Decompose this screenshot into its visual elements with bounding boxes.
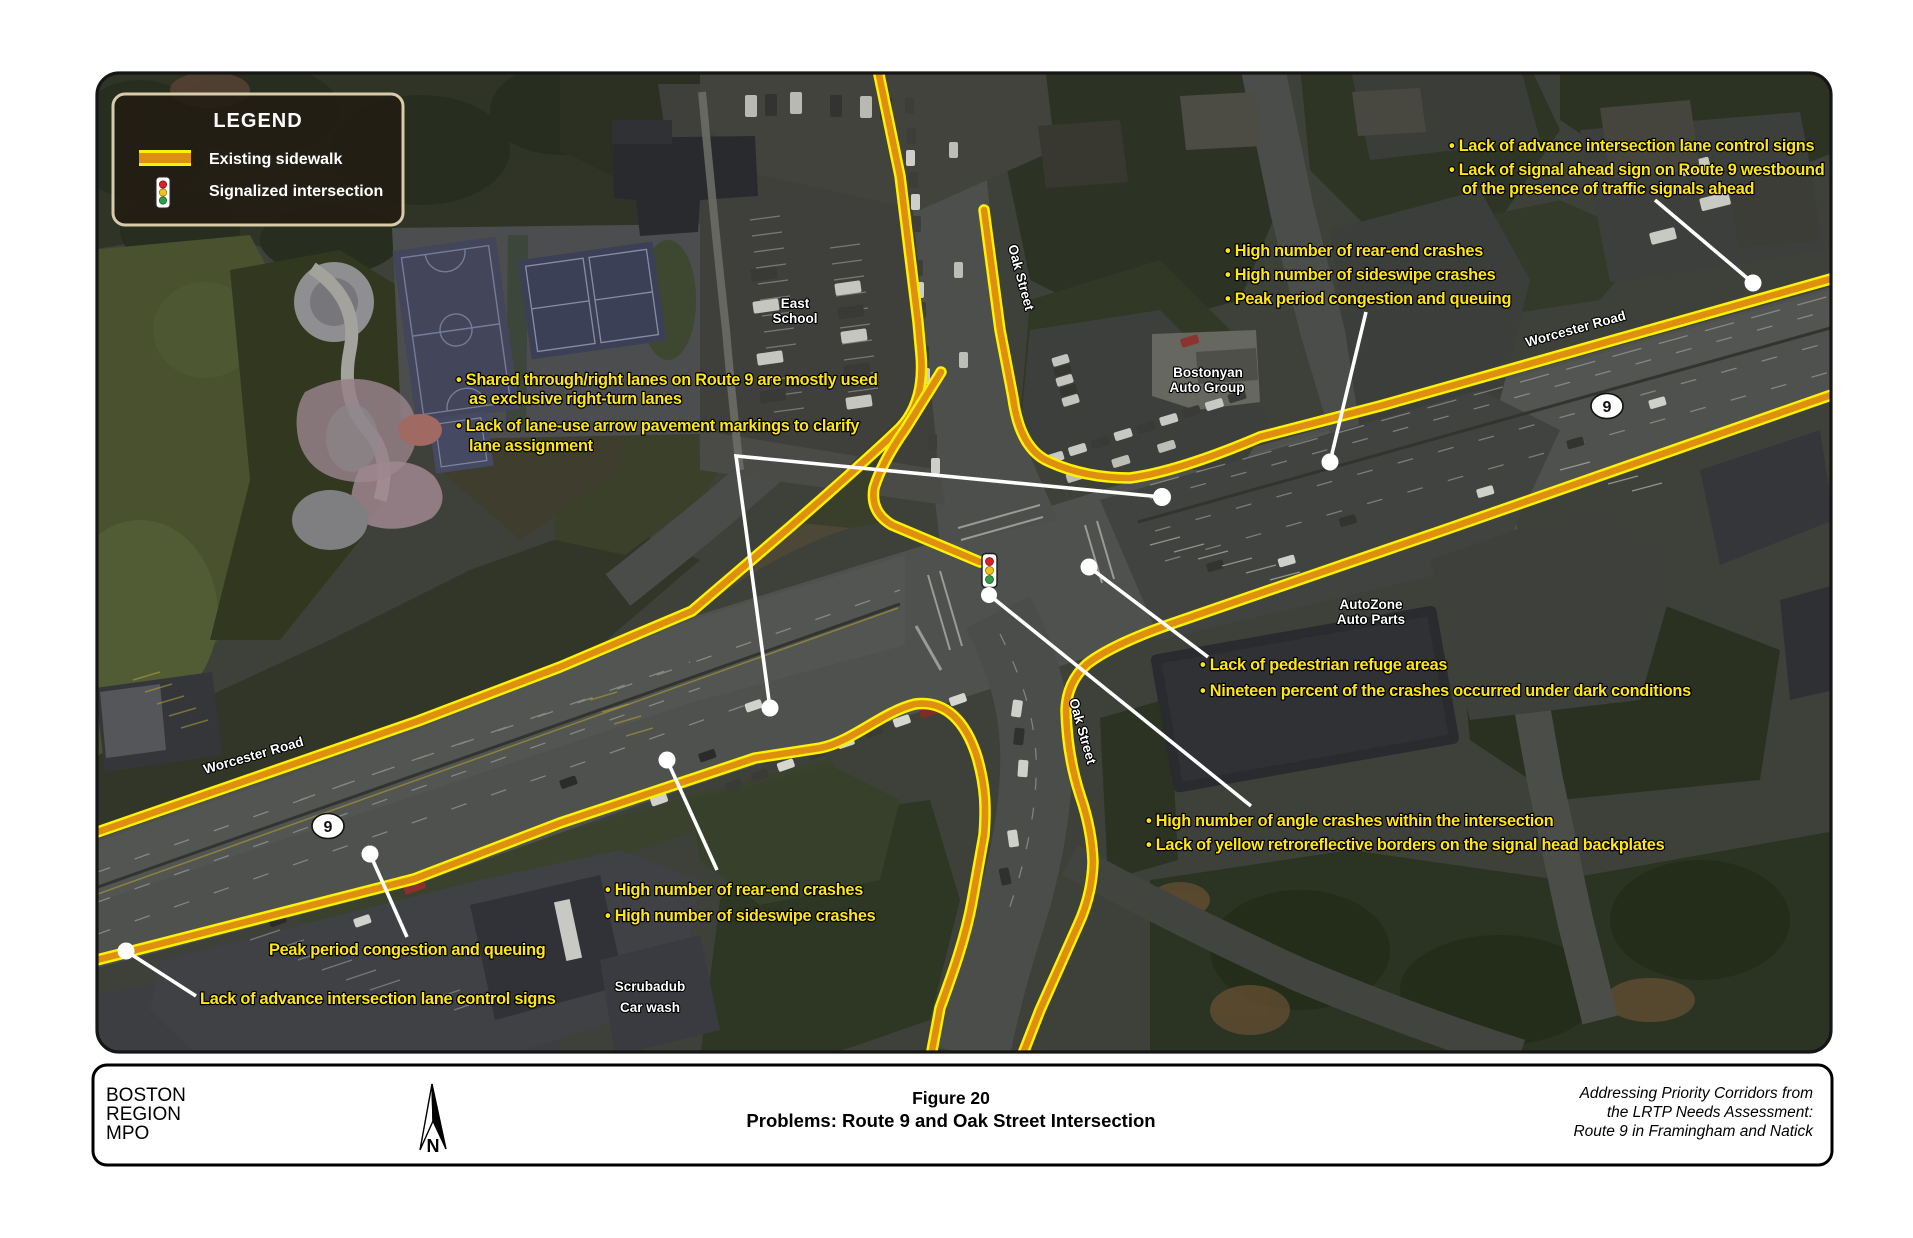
svg-text:Lack of advance intersection l: Lack of advance intersection lane contro…: [200, 990, 556, 1008]
svg-text:lane assignment: lane assignment: [469, 437, 594, 455]
svg-text:Route 9 in Framingham and Nati: Route 9 in Framingham and Natick: [1573, 1123, 1814, 1140]
svg-text:REGION: REGION: [106, 1104, 181, 1125]
svg-text:Addressing Priority Corridors: Addressing Priority Corridors from: [1579, 1085, 1814, 1102]
svg-text:the LRTP Needs Assessment:: the LRTP Needs Assessment:: [1607, 1104, 1813, 1121]
svg-text:Figure 20: Figure 20: [912, 1088, 990, 1108]
svg-text:Existing sidewalk: Existing sidewalk: [209, 151, 342, 168]
svg-text:N: N: [427, 1136, 440, 1156]
svg-text:Scrubadub: Scrubadub: [615, 979, 686, 994]
svg-text:LEGEND: LEGEND: [213, 110, 302, 132]
svg-text:• High number of sideswipe cra: • High number of sideswipe crashes: [1225, 266, 1496, 284]
svg-text:AutoZone: AutoZone: [1340, 597, 1403, 612]
svg-text:• Lack of yellow retroreflecti: • Lack of yellow retroreflective borders…: [1146, 836, 1665, 854]
svg-text:Bostonyan: Bostonyan: [1173, 365, 1243, 380]
svg-text:9: 9: [1603, 399, 1612, 416]
svg-text:Auto Parts: Auto Parts: [1337, 612, 1405, 627]
svg-text:• High number of rear-end cras: • High number of rear-end crashes: [605, 881, 863, 899]
svg-text:School: School: [772, 311, 817, 326]
svg-text:Auto Group: Auto Group: [1170, 380, 1245, 395]
svg-text:9: 9: [324, 819, 333, 836]
svg-text:Peak period congestion and que: Peak period congestion and queuing: [269, 941, 545, 959]
svg-text:Problems: Route 9 and Oak Stre: Problems: Route 9 and Oak Street Interse…: [746, 1110, 1155, 1131]
svg-text:• Lack of advance intersection: • Lack of advance intersection lane cont…: [1449, 137, 1815, 155]
svg-text:as exclusive right-turn lanes: as exclusive right-turn lanes: [469, 390, 682, 408]
svg-text:• Lack of pedestrian refuge ar: • Lack of pedestrian refuge areas: [1200, 656, 1447, 674]
svg-text:• Lack of lane-use arrow pavem: • Lack of lane-use arrow pavement markin…: [456, 417, 859, 435]
svg-text:• Lack of signal ahead sign on: • Lack of signal ahead sign on Route 9 w…: [1449, 161, 1824, 179]
svg-text:BOSTON: BOSTON: [106, 1085, 186, 1106]
svg-text:• Peak period congestion and q: • Peak period congestion and queuing: [1225, 290, 1511, 308]
svg-text:• Nineteen percent of the cras: • Nineteen percent of the crashes occurr…: [1200, 682, 1691, 700]
svg-text:MPO: MPO: [106, 1123, 149, 1144]
svg-text:East: East: [781, 296, 810, 311]
svg-text:• High number of sideswipe cra: • High number of sideswipe crashes: [605, 907, 876, 925]
svg-text:• High number of angle crashes: • High number of angle crashes within th…: [1146, 812, 1553, 830]
svg-text:• High number of rear-end cras: • High number of rear-end crashes: [1225, 242, 1483, 260]
svg-text:Signalized intersection: Signalized intersection: [209, 183, 383, 200]
svg-text:of the presence of traffic sig: of the presence of traffic signals ahead: [1462, 180, 1754, 198]
svg-text:• Shared through/right lanes o: • Shared through/right lanes on Route 9 …: [456, 371, 878, 389]
svg-text:Car wash: Car wash: [620, 1000, 680, 1015]
